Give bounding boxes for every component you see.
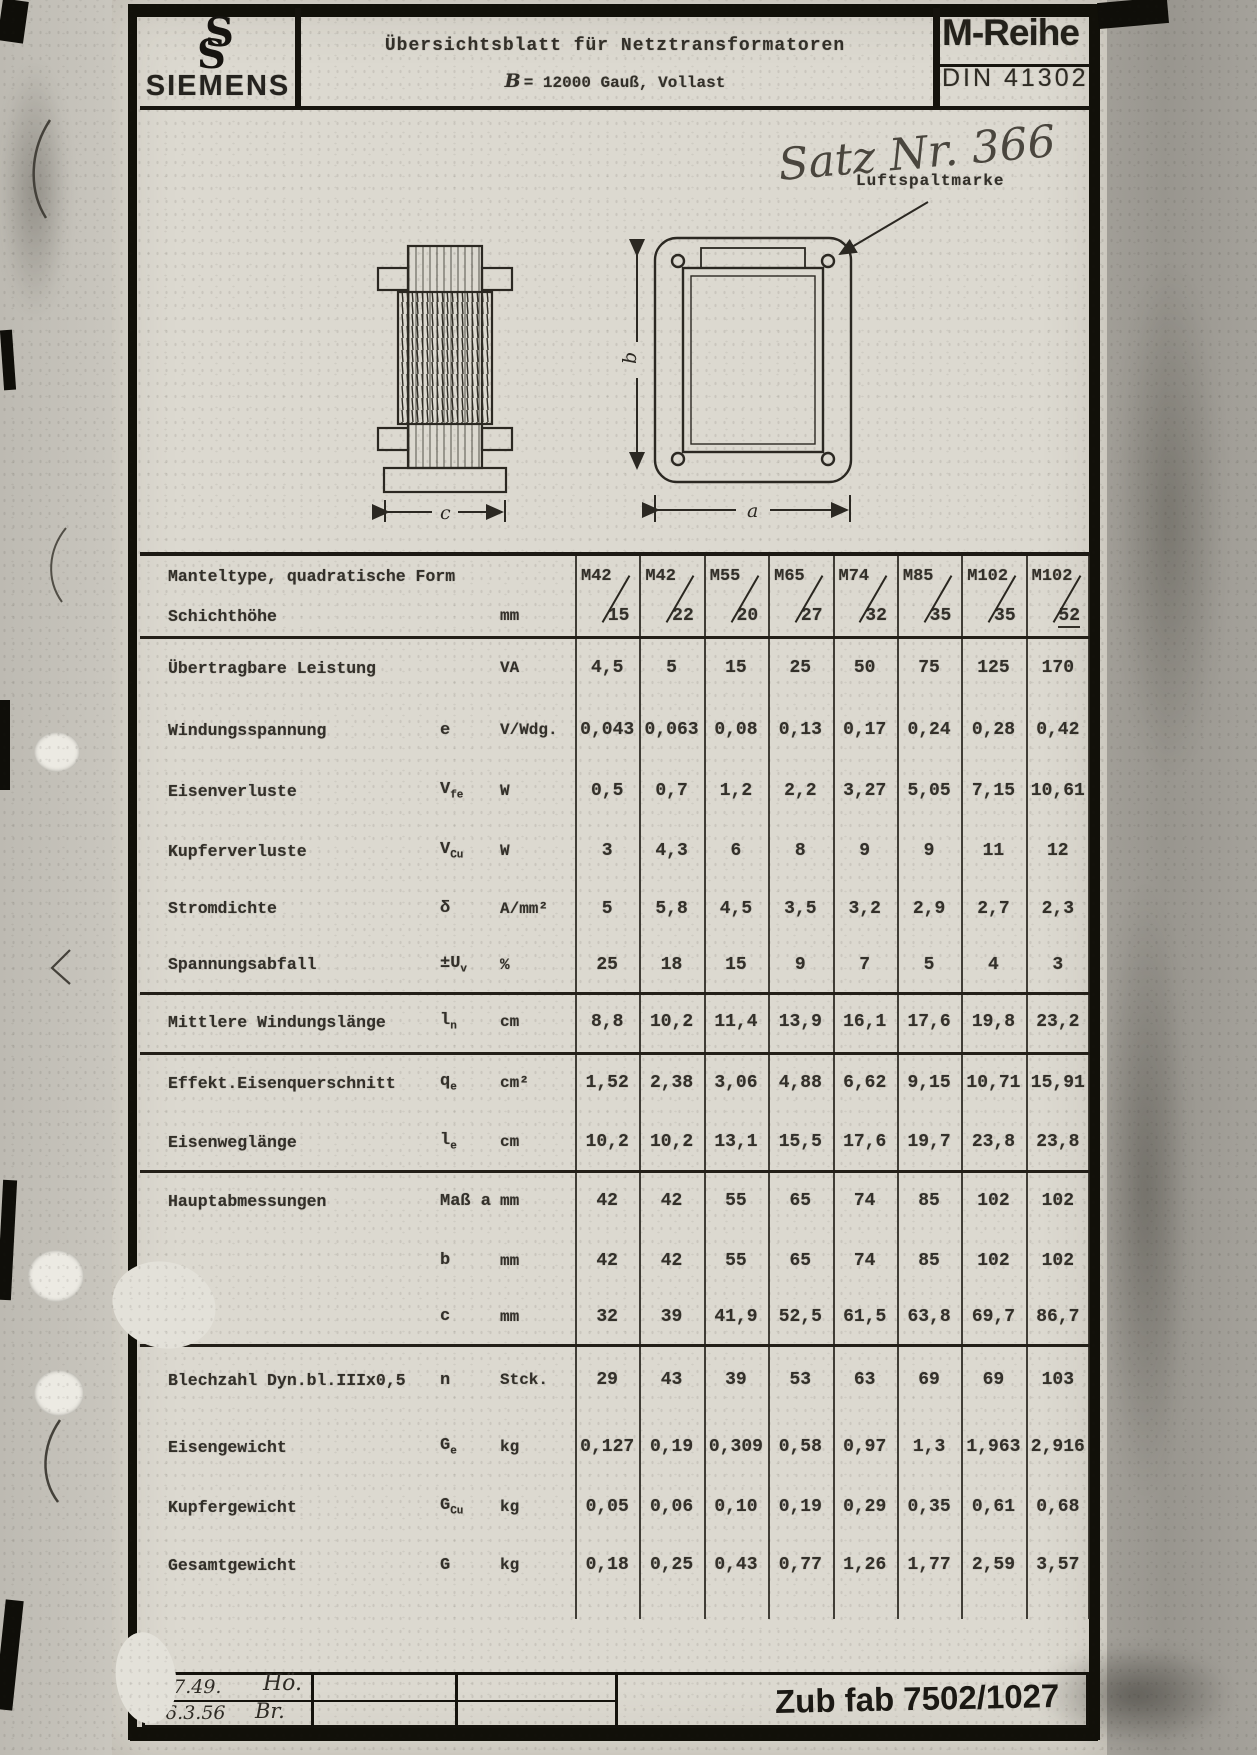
column-line [897,556,899,1619]
table-cell: 23,2 [1026,1012,1090,1032]
table-cell: 5 [575,899,639,919]
series-box: M-Reihe DIN 41302 [942,12,1090,106]
row-label: Spannungsabfall [140,955,440,974]
column-line [1088,556,1090,1619]
row-symbol-sub: Cu [450,850,463,862]
table-cell: 10,2 [639,1132,703,1152]
table-row: KupferverlusteVCuW34,368991112 [140,822,1090,880]
row-unit: % [500,956,575,974]
table-cell: 9,15 [897,1073,961,1093]
table-cell: 0,5 [575,781,639,801]
table-height-unit: mm [500,607,575,625]
row-symbol-sub: Cu [450,1506,463,1518]
row-unit: mm [500,1252,575,1270]
row-symbol-sub: n [450,1021,457,1033]
table-row: Spannungsabfall±Uv%25181597543 [140,937,1090,992]
table-cell: 85 [897,1191,961,1211]
table-cell: 25 [575,955,639,975]
row-unit: V/Wdg. [500,721,575,739]
table-cell: 3,27 [833,781,897,801]
row-symbol-sub: e [450,1082,457,1094]
table-cell: 13,9 [768,1012,832,1032]
table-row: EisenverlusteVfeW0,50,71,22,23,275,057,1… [140,760,1090,822]
row-symbol: Vfe [440,780,500,801]
column-line [575,556,577,1619]
table-cell: 69,7 [961,1307,1025,1327]
row-unit: kg [500,1438,575,1456]
din-label: DIN 41302 [942,64,1090,93]
frame-bottom [130,1727,1098,1741]
row-symbol-sub: fe [450,790,463,802]
table-divider [140,992,1090,995]
table-divider [140,1170,1090,1173]
scan-smudge [1115,260,1225,780]
table-divider [140,1344,1090,1347]
table-cell: 1,26 [833,1555,897,1575]
table-cell: 0,19 [639,1437,703,1457]
table-cell: 0,10 [704,1497,768,1517]
row-unit: kg [500,1556,575,1574]
table-cell: 1,77 [897,1555,961,1575]
series-label: M-Reihe [942,12,1090,54]
row-symbol: Ge [440,1436,500,1457]
row-symbol: ln [440,1011,500,1032]
table-cell: 102 [961,1251,1025,1271]
table-type-row: Manteltype, quadratische FormM42M42M55M6… [140,556,1090,596]
table-cell: 17,6 [897,1012,961,1032]
table-cell: 11 [961,841,1025,861]
row-label: Mittlere Windungslänge [140,1013,440,1032]
row-unit: kg [500,1498,575,1516]
row-unit: cm [500,1013,575,1031]
table-cell: 2,7 [961,899,1025,919]
table-cell: 0,17 [833,720,897,740]
table-cell: 1,2 [704,781,768,801]
table-cell: 0,18 [575,1555,639,1575]
table-cell: 6 [704,841,768,861]
data-table: Manteltype, quadratische FormM42M42M55M6… [140,552,1090,1615]
table-cell: 6,62 [833,1073,897,1093]
column-height: 35 [961,606,1025,626]
table-cell: 0,58 [768,1437,832,1457]
table-height-label: Schichthöhe [140,607,440,626]
svg-text:S: S [197,31,226,70]
table-row: WindungsspannungeV/Wdg.0,0430,0630,080,1… [140,700,1090,760]
table-cell: 0,97 [833,1437,897,1457]
table-cell: 2,38 [639,1073,703,1093]
table-cell: 0,13 [768,720,832,740]
table-cell: 0,08 [704,720,768,740]
table-cell: 2,2 [768,781,832,801]
table-cell: 39 [704,1370,768,1390]
table-cell: 43 [639,1370,703,1390]
table-cell: 4,88 [768,1073,832,1093]
row-symbol: ±Uv [440,954,500,975]
row-label: Eisenverluste [140,782,440,801]
table-cell: 75 [897,658,961,678]
table-cell: 0,29 [833,1497,897,1517]
table-cell: 2,3 [1026,899,1090,919]
table-cell: 125 [961,658,1025,678]
row-label: Eisengewicht [140,1438,440,1457]
table-cell: 3,2 [833,899,897,919]
table-cell: 74 [833,1191,897,1211]
table-cell: 18 [639,955,703,975]
table-cell: 42 [575,1251,639,1271]
row-symbol: GCu [440,1496,500,1517]
table-cell: 8 [768,841,832,861]
table-cell: 170 [1026,658,1090,678]
row-symbol-sub: e [450,1446,457,1458]
table-type-label: Manteltype, quadratische Form [140,567,440,586]
table-row: bmm424255657485102102 [140,1232,1090,1289]
table-cell: 65 [768,1251,832,1271]
table-cell: 55 [704,1251,768,1271]
table-cell: 19,7 [897,1132,961,1152]
flux-symbol: B [505,70,524,92]
table-cell: 19,8 [961,1012,1025,1032]
table-cell: 52,5 [768,1307,832,1327]
table-cell: 2,916 [1026,1437,1090,1457]
row-symbol-sub: v [460,963,467,975]
row-symbol: e [440,721,500,740]
row-unit: VA [500,659,575,677]
table-cell: 4,3 [639,841,703,861]
punch-hole [28,1250,84,1302]
table-cell: 10,61 [1026,781,1090,801]
table-cell: 0,35 [897,1497,961,1517]
siemens-monogram-icon: S S [143,12,293,70]
table-cell: 0,42 [1026,720,1090,740]
row-label: Effekt.Eisenquerschnitt [140,1074,440,1093]
table-cell: 0,77 [768,1555,832,1575]
table-cell: 42 [639,1191,703,1211]
column-line [961,556,963,1619]
row-label: Gesamtgewicht [140,1556,440,1575]
table-cell: 42 [575,1191,639,1211]
table-cell: 85 [897,1251,961,1271]
row-symbol: qe [440,1072,500,1093]
table-cell: 0,43 [704,1555,768,1575]
table-row: KupfergewichtGCukg0,050,060,100,190,290,… [140,1478,1090,1536]
scan-smudge [1100,880,1190,1500]
page-subtitle: B= 12000 Gauß, Vollast [300,70,930,92]
table-cell: 9 [897,841,961,861]
table-cell: 10,2 [575,1132,639,1152]
row-symbol: G [440,1556,500,1575]
table-cell: 0,68 [1026,1497,1090,1517]
dim-b: b [619,255,641,468]
table-cell: 103 [1026,1370,1090,1390]
row-unit: mm [500,1308,575,1326]
table-cell: 15 [704,658,768,678]
logo-box: S S SIEMENS [143,12,293,106]
table-cell: 102 [961,1191,1025,1211]
dim-b-label: b [619,352,641,364]
series-box-divider [933,8,940,108]
column-line [639,556,641,1619]
row-unit: W [500,782,575,800]
table-cell: 3 [575,841,639,861]
row-unit: cm² [500,1074,575,1092]
table-cell: 13,1 [704,1132,768,1152]
table-cell: 9 [768,955,832,975]
table-row: cmm323941,952,561,563,869,786,7 [140,1289,1090,1344]
column-line [833,556,835,1619]
table-cell: 15 [704,955,768,975]
dim-a: a [655,495,850,522]
row-unit: Stck. [500,1371,575,1389]
column-height-value: 32 [865,606,887,626]
table-cell: 53 [768,1370,832,1390]
table-cell: 0,127 [575,1437,639,1457]
table-row: Effekt.Eisenquerschnittqecm²1,522,383,06… [140,1052,1090,1114]
table-cell: 63 [833,1370,897,1390]
table-row: Eisenweglängelecm10,210,213,115,517,619,… [140,1114,1090,1170]
table-cell: 8,8 [575,1012,639,1032]
table-cell: 69 [897,1370,961,1390]
table-row: HauptabmessungenMaß amm42425565748510210… [140,1170,1090,1232]
footer-signature-1: Hö. [263,1671,302,1696]
table-cell: 2,59 [961,1555,1025,1575]
title-box: Übersichtsblatt für Netztransformatoren … [300,14,930,106]
table-cell: 15,91 [1026,1073,1090,1093]
row-symbol: VCu [440,840,500,861]
table-cell: 55 [704,1191,768,1211]
punch-hole [34,1370,84,1416]
brand-name: SIEMENS [143,70,293,103]
row-label: Eisenweglänge [140,1133,440,1152]
page-title: Übersichtsblatt für Netztransformatoren [300,36,930,56]
dim-c-label: c [440,502,451,524]
dim-a-label: a [747,500,758,522]
row-unit: W [500,842,575,860]
table-cell: 41,9 [704,1307,768,1327]
punch-hole [34,732,80,772]
table-cell: 5,05 [897,781,961,801]
table-cell: 0,063 [639,720,703,740]
table-cell: 4 [961,955,1025,975]
table-row: Übertragbare LeistungVA4,551525507512517… [140,636,1090,700]
table-cell: 23,8 [1026,1132,1090,1152]
frame-right [1089,4,1100,1740]
table-cell: 9 [833,841,897,861]
table-cell: 63,8 [897,1307,961,1327]
table-cell: 17,6 [833,1132,897,1152]
table-row: Blechzahl Dyn.bl.IIIx0,5nStck.2943395363… [140,1344,1090,1416]
row-label: Kupfergewicht [140,1498,440,1517]
row-symbol-sub: e [450,1141,457,1153]
table-row: StromdichteδA/mm²55,84,53,53,22,92,72,3 [140,880,1090,937]
table-cell: 4,5 [575,658,639,678]
table-cell: 69 [961,1370,1025,1390]
table-cell: 0,7 [639,781,703,801]
table-cell: 0,61 [961,1497,1025,1517]
table-cell: 0,28 [961,720,1025,740]
table-cell: 4,5 [704,899,768,919]
row-label: Windungsspannung [140,721,440,740]
row-label: Hauptabmessungen [140,1192,440,1211]
table-cell: 74 [833,1251,897,1271]
table-cell: 0,06 [639,1497,703,1517]
table-cell: 1,52 [575,1073,639,1093]
table-row: Mittlere Windungslängelncm8,810,211,413,… [140,992,1090,1052]
row-label: Blechzahl Dyn.bl.IIIx0,5 [140,1371,440,1390]
row-symbol: δ [440,899,500,918]
frame-left [128,4,137,1740]
table-cell: 0,309 [704,1437,768,1457]
table-cell: 23,8 [961,1132,1025,1152]
table-row: GesamtgewichtGkg0,180,250,430,771,261,77… [140,1536,1090,1594]
table-cell: 7 [833,955,897,975]
row-label: Stromdichte [140,899,440,918]
table-cell: 0,24 [897,720,961,740]
table-cell: 7,15 [961,781,1025,801]
table-cell: 5,8 [639,899,703,919]
table-cell: 102 [1026,1191,1090,1211]
table-cell: 2,9 [897,899,961,919]
top-view-figure [655,238,851,482]
table-cell: 65 [768,1191,832,1211]
row-unit: cm [500,1133,575,1151]
table-cell: 102 [1026,1251,1090,1271]
row-symbol: c [440,1307,500,1326]
column-line [1026,556,1028,1619]
table-cell: 3,57 [1026,1555,1090,1575]
footer-stamp: Zub fab 7502/1027 [775,1677,1060,1721]
table-cell: 39 [639,1307,703,1327]
row-unit: A/mm² [500,900,575,918]
table-cell: 12 [1026,841,1090,861]
table-cell: 86,7 [1026,1307,1090,1327]
side-view-figure [378,246,512,492]
table-cell: 10,71 [961,1073,1025,1093]
table-cell: 15,5 [768,1132,832,1152]
table-cell: 1,3 [897,1437,961,1457]
table-cell: 50 [833,658,897,678]
table-cell: 3 [1026,955,1090,975]
table-row: EisengewichtGekg0,1270,190,3090,580,971,… [140,1416,1090,1478]
table-divider [140,636,1090,639]
table-divider [140,1052,1090,1055]
table-cell: 32 [575,1307,639,1327]
table-cell: 29 [575,1370,639,1390]
row-symbol: le [440,1131,500,1152]
table-cell: 5 [639,658,703,678]
table-cell: 3,06 [704,1073,768,1093]
table-cell: 10,2 [639,1012,703,1032]
airgap-arrow [840,202,928,254]
row-unit: mm [500,1192,575,1210]
row-label: Kupferverluste [140,842,440,861]
row-label: Übertragbare Leistung [140,659,440,678]
table-cell: 1,963 [961,1437,1025,1457]
table-cell: 5 [897,955,961,975]
subtitle-text: = 12000 Gauß, Vollast [524,74,726,92]
table-cell: 25 [768,658,832,678]
table-cell: 0,19 [768,1497,832,1517]
footer-divider [615,1675,618,1725]
table-cell: 0,05 [575,1497,639,1517]
footer-signature-2: Br. [255,1699,285,1723]
row-symbol: n [440,1371,500,1390]
column-line [768,556,770,1619]
table-cell: 3,5 [768,899,832,919]
table-cell: 0,25 [639,1555,703,1575]
row-symbol: Maß a [440,1192,500,1211]
row-symbol: b [440,1251,500,1270]
table-cell: 16,1 [833,1012,897,1032]
table-cell: 42 [639,1251,703,1271]
airgap-label: Luftspaltmarke [856,172,1004,190]
table-cell: 61,5 [833,1307,897,1327]
dim-c: c [385,500,505,524]
table-cell: 11,4 [704,1012,768,1032]
column-line [704,556,706,1619]
table-cell: 0,043 [575,720,639,740]
